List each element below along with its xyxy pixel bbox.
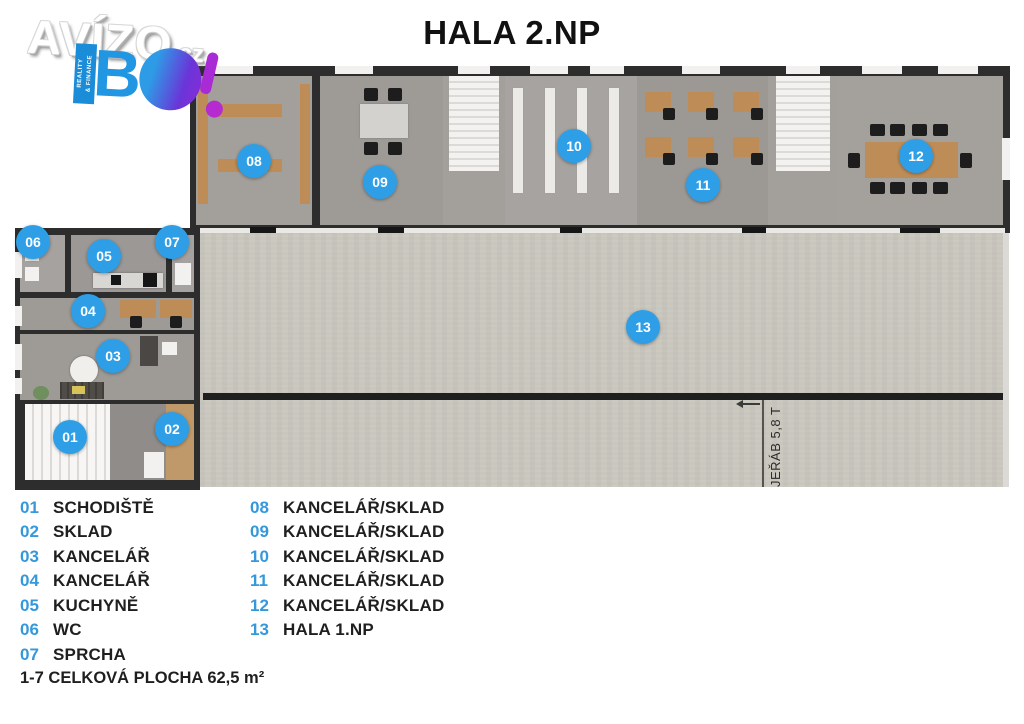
- room-marker-01: 01: [53, 420, 87, 454]
- room-11-area: [637, 76, 768, 225]
- legend-item-02: 02SKLAD: [20, 524, 154, 542]
- legend-number: 01: [20, 498, 53, 518]
- stairwell-2: [768, 76, 838, 225]
- legend-number: 06: [20, 620, 53, 640]
- pillow: [72, 386, 85, 394]
- legend-label: WC: [53, 620, 82, 640]
- legend-column-right: 08KANCELÁŘ/SKLAD 09KANCELÁŘ/SKLAD 10KANC…: [250, 499, 444, 639]
- room-marker-07: 07: [155, 225, 189, 259]
- legend-item-06: 06WC: [20, 622, 154, 640]
- legend-item-04: 04KANCELÁŘ: [20, 573, 154, 591]
- legend-item-01: 01SCHODIŠTĚ: [20, 499, 154, 517]
- room-marker-12: 12: [899, 139, 933, 173]
- ribbon-line2: & FINANCE: [85, 55, 93, 92]
- legend-label: SKLAD: [53, 522, 113, 542]
- room-marker-02: 02: [155, 412, 189, 446]
- room-marker-03: 03: [96, 339, 130, 373]
- desk: [140, 336, 158, 366]
- legend-number: 05: [20, 596, 53, 616]
- legend-label: KANCELÁŘ/SKLAD: [283, 522, 444, 542]
- legend-label: HALA 1.NP: [283, 620, 374, 640]
- room-marker-10: 10: [557, 129, 591, 163]
- room-marker-06: 06: [16, 225, 50, 259]
- corridor: [110, 404, 140, 480]
- legend-number: 08: [250, 498, 283, 518]
- room-04-area: [20, 298, 194, 330]
- legend-label: SCHODIŠTĚ: [53, 498, 154, 518]
- legend-label: KANCELÁŘ: [53, 547, 150, 567]
- legend-label: KANCELÁŘ/SKLAD: [283, 596, 444, 616]
- room-marker-13: 13: [626, 310, 660, 344]
- crane-rail: [203, 393, 1003, 400]
- legend-label: KANCELÁŘ/SKLAD: [283, 547, 444, 567]
- legend-item-13: 13HALA 1.NP: [250, 622, 444, 640]
- legend-number: 02: [20, 522, 53, 542]
- legend-number: 13: [250, 620, 283, 640]
- plant-icon: [33, 386, 49, 400]
- total-area-note: 1-7 CELKOVÁ PLOCHA 62,5 m²: [20, 669, 264, 688]
- legend-number: 07: [20, 645, 53, 665]
- legend-number: 12: [250, 596, 283, 616]
- legend-label: SPRCHA: [53, 645, 126, 665]
- legend-item-08: 08KANCELÁŘ/SKLAD: [250, 499, 444, 517]
- legend-number: 09: [250, 522, 283, 542]
- bo-logo-letter-b: B: [92, 34, 144, 112]
- bo-logo-exclamation-dot-icon: [205, 100, 223, 118]
- legend-item-12: 12KANCELÁŘ/SKLAD: [250, 597, 444, 615]
- crane-arrow-icon: [741, 403, 760, 405]
- legend-item-11: 11KANCELÁŘ/SKLAD: [250, 573, 444, 591]
- stairwell-1: [443, 76, 505, 225]
- legend-item-10: 10KANCELÁŘ/SKLAD: [250, 548, 444, 566]
- avizo-logo: AVÍZO.cz REALITY& FINANCE B: [15, 0, 241, 131]
- legend-number: 03: [20, 547, 53, 567]
- table: [360, 104, 408, 138]
- room-marker-04: 04: [71, 294, 105, 328]
- legend-number: 10: [250, 547, 283, 567]
- legend-column-left: 01SCHODIŠTĚ 02SKLAD 03KANCELÁŘ 04KANCELÁ…: [20, 499, 154, 664]
- room-marker-05: 05: [87, 239, 121, 273]
- legend-label: KANCELÁŘ/SKLAD: [283, 498, 444, 518]
- crane-arrowhead-icon: [736, 400, 743, 408]
- hall-right-edge: [1003, 233, 1009, 487]
- round-table: [70, 356, 98, 384]
- hall-area: [200, 233, 1005, 487]
- room-marker-11: 11: [686, 168, 720, 202]
- crane-label: JEŘÁB 5,8 T: [768, 401, 783, 487]
- crane-dimension-line: [762, 400, 764, 487]
- legend-number: 11: [250, 571, 283, 591]
- ribbon-line1: REALITY: [76, 59, 84, 88]
- legend-label: KANCELÁŘ/SKLAD: [283, 571, 444, 591]
- floorplan-page: HALA 2.NP AVÍZO.cz REALITY& FINANCE B: [0, 0, 1024, 724]
- room-09-area: [320, 76, 443, 225]
- legend-item-09: 09KANCELÁŘ/SKLAD: [250, 524, 444, 542]
- room-marker-09: 09: [363, 165, 397, 199]
- legend-item-03: 03KANCELÁŘ: [20, 548, 154, 566]
- legend-item-05: 05KUCHYNĚ: [20, 597, 154, 615]
- room-marker-08: 08: [237, 144, 271, 178]
- legend-item-07: 07SPRCHA: [20, 646, 154, 664]
- upper-building: [190, 66, 1010, 233]
- legend-label: KANCELÁŘ: [53, 571, 150, 591]
- legend-label: KUCHYNĚ: [53, 596, 138, 616]
- legend-number: 04: [20, 571, 53, 591]
